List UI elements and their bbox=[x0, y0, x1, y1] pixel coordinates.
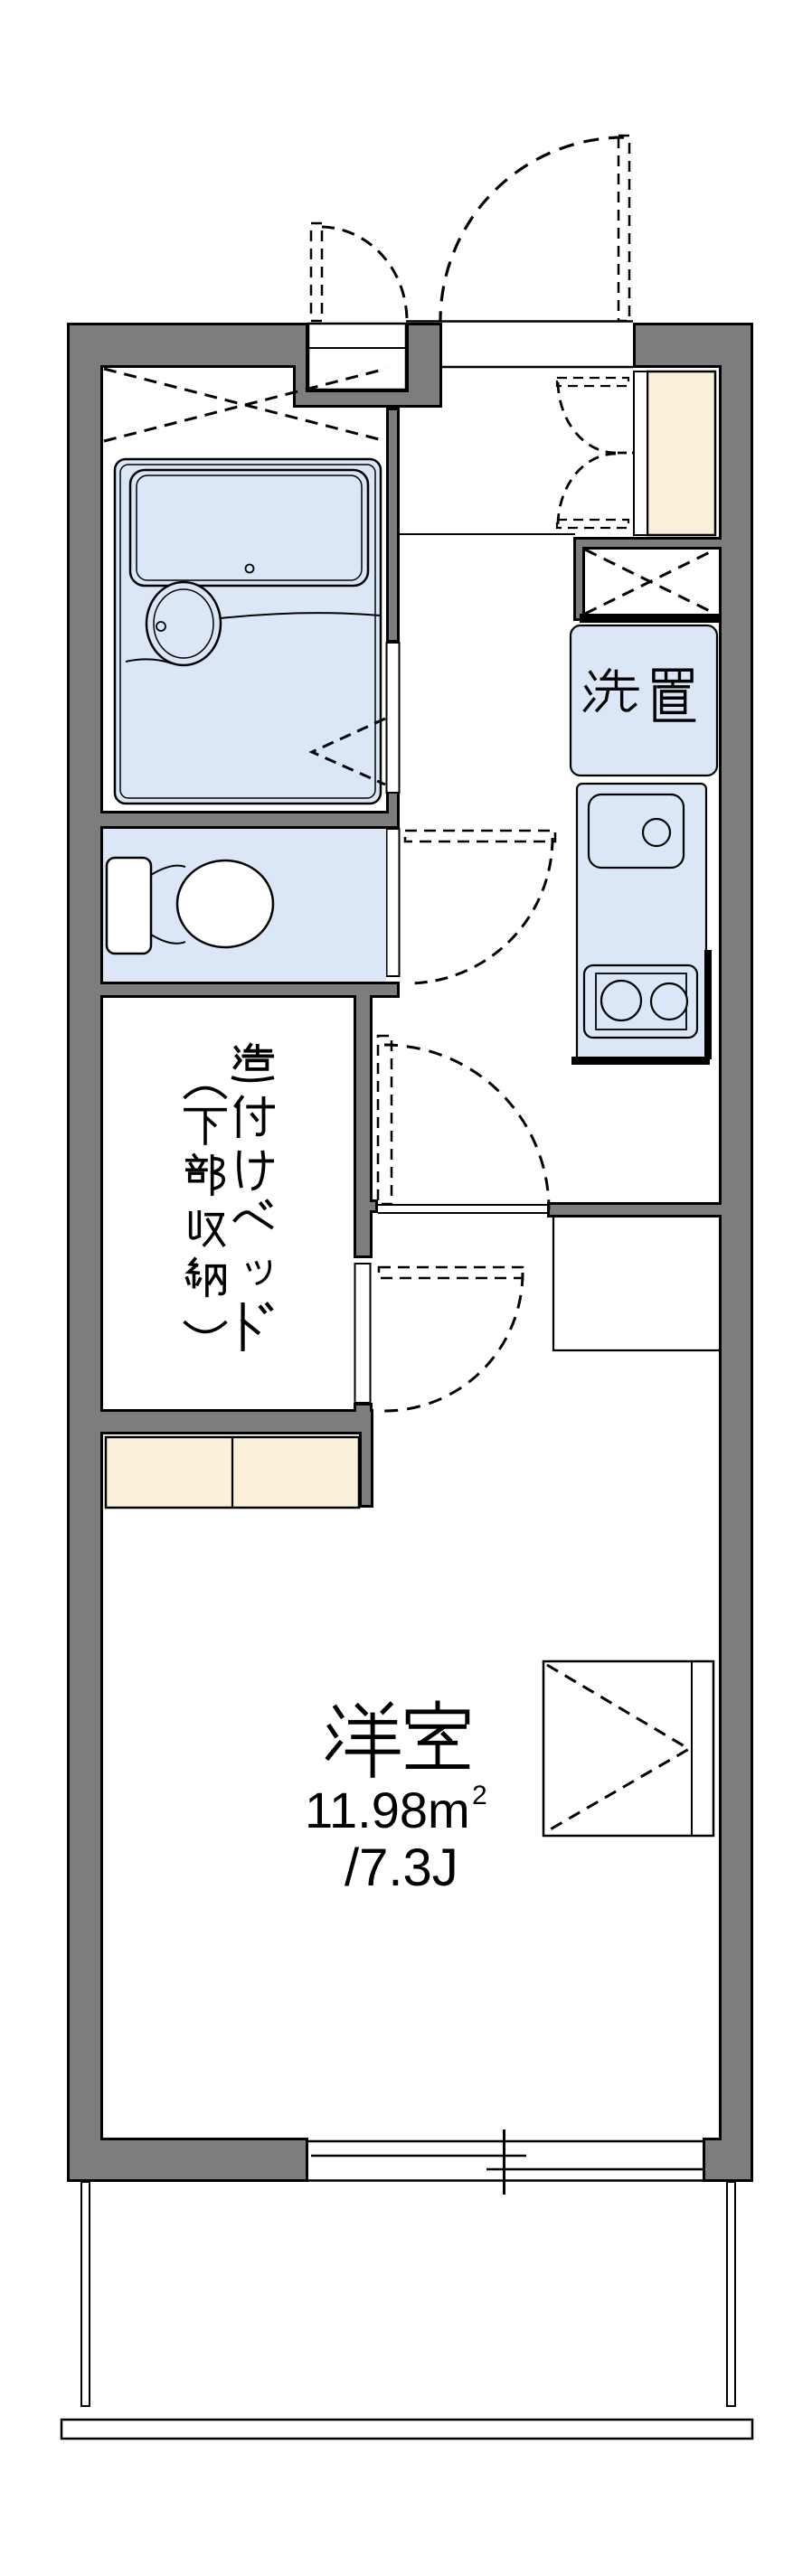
svg-text:11.98m: 11.98m bbox=[305, 1782, 470, 1838]
svg-text:2: 2 bbox=[472, 1781, 487, 1810]
svg-text:/7.3J: /7.3J bbox=[345, 1838, 458, 1897]
